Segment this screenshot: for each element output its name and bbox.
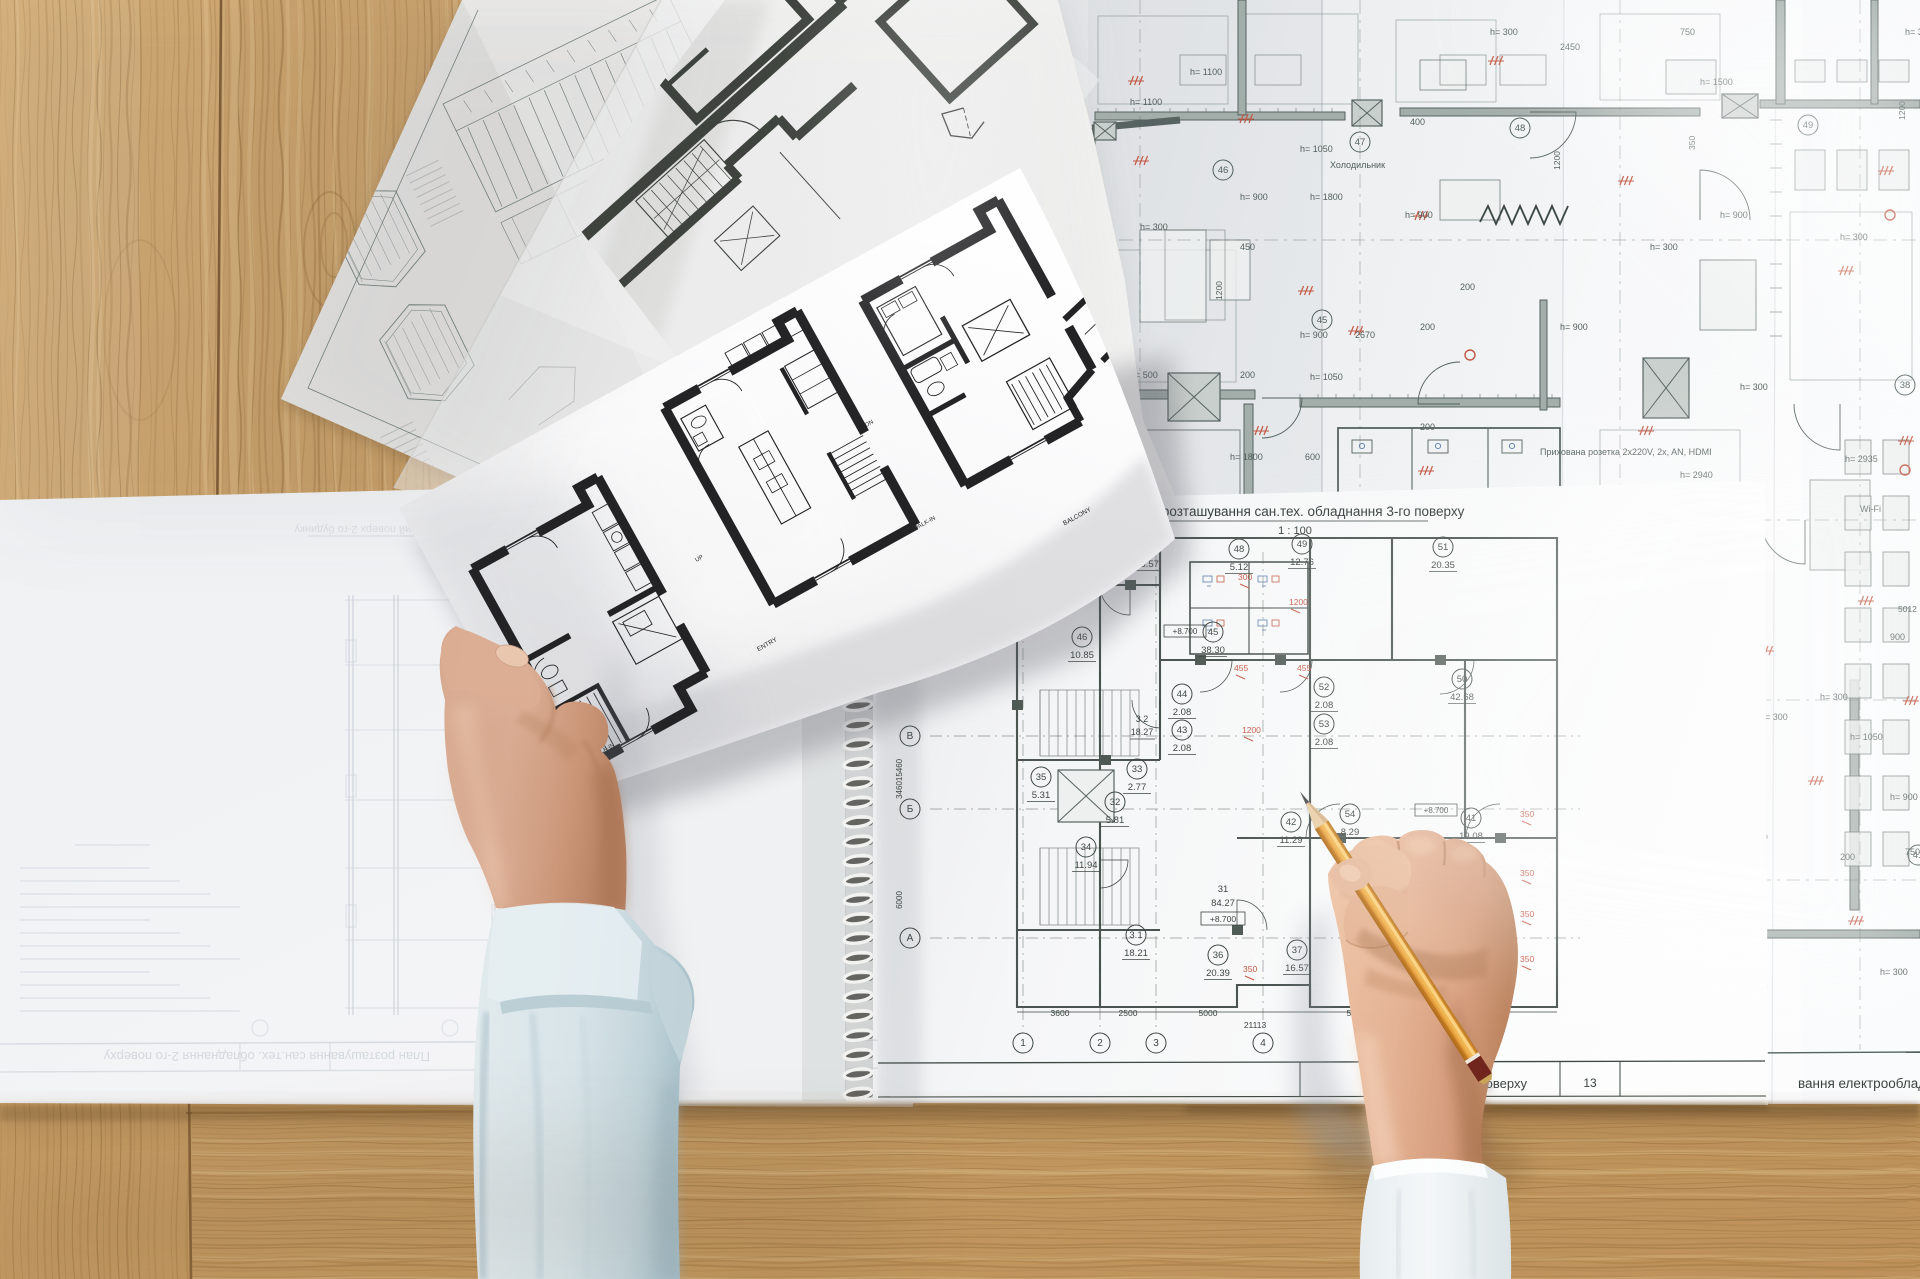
svg-text:h= 1100: h= 1100 bbox=[1130, 97, 1162, 107]
svg-text:21113: 21113 bbox=[1244, 1020, 1267, 1030]
svg-text:3: 3 bbox=[1153, 1038, 1159, 1049]
svg-text:h= 300: h= 300 bbox=[1740, 382, 1768, 392]
svg-text:450: 450 bbox=[1240, 242, 1255, 252]
svg-text:200: 200 bbox=[1460, 282, 1475, 292]
svg-text:h= 1100: h= 1100 bbox=[1190, 67, 1222, 77]
svg-text:31: 31 bbox=[1218, 884, 1229, 895]
svg-text:200: 200 bbox=[1420, 322, 1435, 332]
svg-text:5.31: 5.31 bbox=[1032, 790, 1051, 801]
svg-text:h= 900: h= 900 bbox=[1405, 210, 1433, 220]
svg-text:84.27: 84.27 bbox=[1211, 898, 1235, 909]
svg-text:2.08: 2.08 bbox=[1173, 743, 1192, 754]
svg-text:43: 43 bbox=[1177, 725, 1188, 736]
svg-text:1200: 1200 bbox=[1242, 725, 1261, 735]
svg-text:3.1: 3.1 bbox=[1129, 930, 1142, 941]
svg-text:2670: 2670 bbox=[1355, 330, 1375, 340]
svg-text:+8.700: +8.700 bbox=[1173, 627, 1198, 636]
svg-text:1200: 1200 bbox=[1214, 281, 1224, 300]
svg-text:h= 900: h= 900 bbox=[1560, 322, 1588, 332]
svg-text:200: 200 bbox=[1240, 370, 1255, 380]
svg-text:46: 46 bbox=[1218, 165, 1229, 176]
svg-text:48: 48 bbox=[1515, 123, 1526, 134]
svg-text:Холодильник: Холодильник bbox=[1330, 160, 1385, 170]
svg-text:+8.700: +8.700 bbox=[1210, 914, 1237, 924]
svg-text:h= 1050: h= 1050 bbox=[1310, 372, 1343, 382]
svg-text:11.94: 11.94 bbox=[1074, 860, 1097, 871]
svg-text:38.30: 38.30 bbox=[1201, 645, 1225, 656]
svg-text:3600: 3600 bbox=[1051, 1008, 1070, 1018]
svg-text:А: А bbox=[907, 933, 914, 944]
svg-text:455: 455 bbox=[1234, 663, 1248, 673]
svg-text:47: 47 bbox=[1355, 137, 1366, 148]
svg-text:34: 34 bbox=[1081, 842, 1092, 853]
svg-text:20.39: 20.39 bbox=[1206, 968, 1230, 979]
svg-text:350: 350 bbox=[1243, 964, 1257, 974]
svg-text:45: 45 bbox=[1317, 315, 1328, 326]
svg-text:1200: 1200 bbox=[1552, 151, 1562, 170]
svg-text:4: 4 bbox=[1260, 1038, 1266, 1049]
svg-text:400: 400 bbox=[1410, 117, 1425, 127]
svg-text:h= 900: h= 900 bbox=[1300, 330, 1328, 340]
svg-text:h= 300: h= 300 bbox=[1140, 222, 1168, 232]
svg-text:33: 33 bbox=[1132, 764, 1143, 775]
svg-text:18.27: 18.27 bbox=[1131, 727, 1154, 737]
svg-text:2500: 2500 bbox=[1119, 1008, 1138, 1018]
svg-text:5.81: 5.81 bbox=[1106, 815, 1125, 826]
svg-text:h= 1800: h= 1800 bbox=[1310, 192, 1343, 202]
svg-text:1: 1 bbox=[1020, 1038, 1026, 1049]
svg-text:h= 900: h= 900 bbox=[1240, 192, 1268, 202]
svg-text:План розташування сан.тех. обл: План розташування сан.тех. обладнання 2-… bbox=[103, 1049, 430, 1064]
svg-text:44: 44 bbox=[1177, 689, 1188, 700]
svg-text:h= 1800: h= 1800 bbox=[1230, 452, 1263, 462]
svg-text:36: 36 bbox=[1213, 950, 1224, 961]
svg-text:32: 32 bbox=[1110, 797, 1121, 808]
svg-text:200: 200 bbox=[1420, 422, 1435, 432]
svg-text:Б: Б bbox=[907, 804, 914, 815]
svg-text:2: 2 bbox=[1097, 1038, 1103, 1049]
svg-text:В: В bbox=[907, 731, 914, 742]
svg-text:h= 300: h= 300 bbox=[1650, 242, 1678, 252]
svg-text:6000: 6000 bbox=[895, 891, 904, 909]
svg-text:2.77: 2.77 bbox=[1128, 782, 1147, 793]
svg-text:18.21: 18.21 bbox=[1124, 948, 1148, 959]
svg-text:2.08: 2.08 bbox=[1173, 707, 1192, 718]
svg-text:3.2: 3.2 bbox=[1136, 714, 1149, 724]
svg-text:45: 45 bbox=[1208, 627, 1219, 638]
svg-text:15460: 15460 bbox=[895, 758, 904, 781]
svg-text:5000: 5000 bbox=[1199, 1008, 1218, 1018]
svg-text:600: 600 bbox=[1305, 452, 1320, 462]
svg-text:3460: 3460 bbox=[895, 781, 904, 799]
svg-text:35: 35 bbox=[1036, 772, 1047, 783]
svg-text:вання електрообладнання 3-го п: вання електрообладнання 3-го п bbox=[1798, 1076, 1920, 1091]
svg-text:h= 1050: h= 1050 bbox=[1300, 144, 1333, 154]
svg-text:13: 13 bbox=[1583, 1076, 1597, 1090]
